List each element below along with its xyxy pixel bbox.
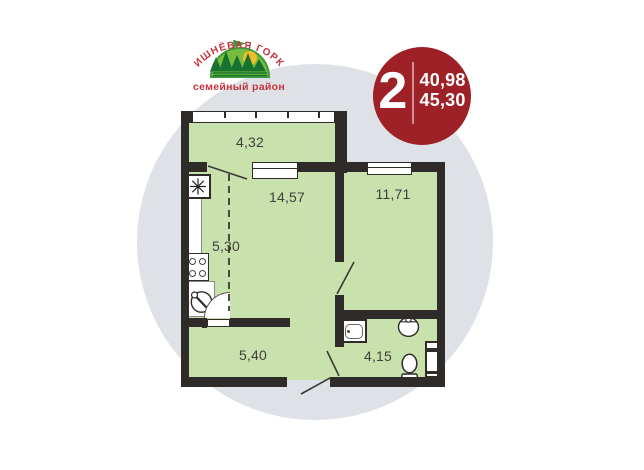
living-room-window [252,162,298,179]
wall [181,162,207,172]
stove-burner [199,270,206,277]
room-area-label-bathroom: 4,15 [348,348,408,364]
window-divider [287,112,289,118]
brand-subtitle-text: семейный район [193,81,285,93]
kitchen-door-leaf [207,319,230,327]
washing-machine-divider [427,371,438,375]
badge-divider [412,62,413,124]
stove-burner [189,270,196,277]
stove-burner [189,258,196,265]
area-living-value: 40,98 [420,71,466,91]
asterisk-icon [187,176,209,197]
window-divider [318,112,320,118]
area-total-value: 45,30 [420,91,466,111]
rooms-count: 2 [378,65,407,117]
wall [335,172,344,262]
window-glass-line [253,168,297,169]
bathtub-icon [341,319,368,343]
window-divider [224,112,226,118]
balcony-window [192,111,335,123]
badge-content: 2 40,98 45,30 [378,60,465,122]
bedroom-window [367,162,412,175]
bathtub-drain [347,330,350,333]
window-divider [255,112,257,118]
room-area-label-hallway: 5,40 [223,347,283,363]
wall [230,318,290,327]
floorplan-card: 4,32 14,57 11,71 5,30 5,40 4,15 [0,0,644,470]
stove-burner [199,258,206,265]
wall [181,111,189,387]
room-area-label-kitchen: 5,30 [196,238,256,254]
entrance-door-swing-line [301,378,330,394]
wall [335,310,445,319]
wall [185,318,202,327]
washing-machine-divider [427,348,438,352]
room-area-label-bedroom: 11,71 [363,186,423,202]
room-area-label-living: 14,57 [257,189,317,205]
apartment-info-badge: 2 40,98 45,30 [373,47,471,145]
wall [437,162,445,387]
wall [181,377,287,387]
brand-logo: ВИШНЁВАЯ ГОРКА семейный район [182,34,300,96]
wall [335,295,344,347]
window-glass-line [368,167,411,168]
wall [297,162,367,172]
wall [330,377,445,387]
room-area-label-loggia: 4,32 [220,134,280,150]
badge-areas: 40,98 45,30 [420,71,466,111]
door-jamb [202,318,207,328]
floor-plan: 4,32 14,57 11,71 5,30 5,40 4,15 [0,0,644,470]
